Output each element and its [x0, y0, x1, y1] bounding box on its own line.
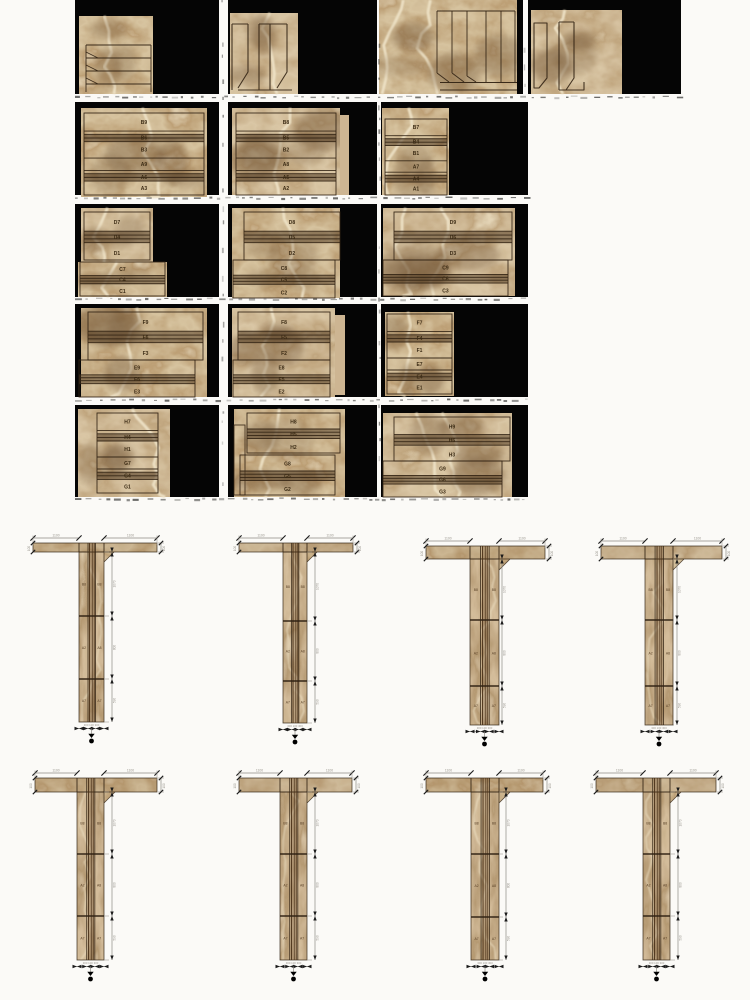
svg-text:F6: F6	[143, 335, 149, 341]
svg-text:A8: A8	[300, 884, 304, 888]
svg-text:C3: C3	[442, 289, 449, 295]
svg-text:A7: A7	[492, 704, 496, 708]
svg-text:1100: 1100	[689, 769, 696, 773]
svg-text:A8: A8	[97, 884, 101, 888]
svg-text:B8: B8	[97, 583, 101, 587]
svg-text:1100: 1100	[257, 534, 264, 538]
svg-text:300 100 300: 300 100 300	[649, 961, 665, 965]
svg-text:100: 100	[721, 783, 725, 789]
svg-text:1070: 1070	[113, 580, 117, 587]
svg-text:B8: B8	[283, 120, 290, 126]
svg-text:A7: A7	[97, 699, 101, 703]
svg-text:A7: A7	[300, 937, 304, 941]
svg-text:1070: 1070	[503, 586, 507, 593]
svg-text:F9: F9	[143, 320, 149, 326]
svg-text:A2: A2	[474, 652, 478, 656]
svg-text:800: 800	[679, 882, 683, 888]
svg-text:1100: 1100	[445, 769, 452, 773]
svg-text:300 100 300: 300 100 300	[286, 961, 302, 965]
svg-text:1070: 1070	[316, 819, 320, 826]
svg-text:F2: F2	[281, 351, 287, 357]
svg-text:G5: G5	[284, 474, 291, 480]
svg-text:A7: A7	[283, 937, 287, 941]
svg-text:E8: E8	[278, 366, 284, 372]
svg-text:300 100 300: 300 100 300	[477, 961, 493, 965]
svg-text:1070: 1070	[679, 819, 683, 826]
svg-text:590: 590	[316, 935, 320, 941]
svg-text:F3: F3	[143, 351, 149, 357]
svg-text:B8: B8	[474, 588, 478, 592]
svg-text:G8: G8	[284, 461, 291, 467]
svg-text:590: 590	[507, 936, 511, 942]
svg-text:100: 100	[162, 546, 166, 552]
svg-text:H9: H9	[449, 424, 456, 430]
svg-text:A1: A1	[413, 187, 420, 193]
svg-text:B8: B8	[475, 822, 479, 826]
svg-text:1100: 1100	[444, 537, 451, 541]
svg-text:100: 100	[233, 546, 237, 552]
svg-text:100: 100	[29, 783, 33, 789]
svg-text:100: 100	[595, 551, 599, 557]
svg-text:A8: A8	[492, 884, 496, 888]
svg-text:E5: E5	[278, 377, 284, 383]
svg-text:A8: A8	[301, 650, 305, 654]
svg-text:A7: A7	[80, 937, 84, 941]
svg-text:G3: G3	[439, 490, 446, 496]
svg-text:A8: A8	[283, 162, 290, 168]
svg-text:A4: A4	[413, 177, 420, 183]
svg-text:F8: F8	[281, 320, 287, 326]
svg-text:300 100 300: 300 100 300	[287, 724, 303, 728]
svg-text:300 100 300: 300 100 300	[651, 726, 667, 730]
svg-text:1100: 1100	[52, 534, 59, 538]
svg-text:A7: A7	[474, 704, 478, 708]
svg-text:E2: E2	[278, 389, 284, 395]
svg-text:B6: B6	[141, 135, 148, 141]
svg-text:A7: A7	[97, 937, 101, 941]
svg-text:D4: D4	[114, 235, 121, 241]
svg-text:C9: C9	[442, 266, 449, 272]
svg-text:1100: 1100	[127, 534, 134, 538]
svg-text:D7: D7	[114, 220, 121, 226]
svg-text:B8: B8	[82, 583, 86, 587]
svg-text:B7: B7	[413, 125, 420, 131]
svg-text:B8: B8	[492, 822, 496, 826]
svg-text:E9: E9	[134, 366, 140, 372]
svg-text:100: 100	[590, 783, 594, 789]
svg-text:1100: 1100	[326, 534, 333, 538]
svg-text:F4: F4	[417, 336, 423, 342]
svg-text:D8: D8	[289, 220, 296, 226]
svg-text:A7: A7	[663, 937, 667, 941]
svg-text:A7: A7	[286, 701, 290, 705]
svg-text:B8: B8	[492, 588, 496, 592]
svg-text:D5: D5	[289, 235, 296, 241]
svg-text:B8: B8	[80, 822, 84, 826]
svg-text:A3: A3	[141, 186, 148, 192]
svg-text:1100: 1100	[619, 537, 626, 541]
svg-text:A8: A8	[666, 652, 670, 656]
svg-text:100: 100	[233, 783, 237, 789]
svg-text:1070: 1070	[507, 819, 511, 826]
svg-text:B8: B8	[300, 822, 304, 826]
svg-text:D1: D1	[114, 251, 121, 257]
svg-text:C6: C6	[442, 277, 449, 283]
svg-text:H4: H4	[124, 435, 131, 441]
svg-text:300 100 300: 300 100 300	[477, 726, 493, 730]
svg-text:H5: H5	[290, 432, 297, 438]
svg-text:H8: H8	[290, 419, 297, 425]
svg-text:H2: H2	[290, 445, 297, 451]
svg-text:100: 100	[420, 783, 424, 789]
svg-text:B8: B8	[649, 588, 653, 592]
svg-text:A8: A8	[97, 646, 101, 650]
svg-text:B8: B8	[663, 822, 667, 826]
svg-text:1070: 1070	[678, 586, 682, 593]
svg-text:B8: B8	[646, 822, 650, 826]
svg-text:H6: H6	[449, 438, 456, 444]
svg-text:D9: D9	[450, 220, 457, 226]
svg-text:100: 100	[162, 783, 166, 789]
svg-text:A8: A8	[663, 884, 667, 888]
svg-text:D6: D6	[450, 235, 457, 241]
svg-text:A2: A2	[646, 884, 650, 888]
svg-text:H7: H7	[124, 420, 131, 426]
svg-text:590: 590	[113, 935, 117, 941]
svg-text:100: 100	[420, 551, 424, 557]
svg-text:590: 590	[679, 935, 683, 941]
svg-text:B8: B8	[283, 822, 287, 826]
svg-text:A2: A2	[82, 646, 86, 650]
svg-text:E1: E1	[416, 385, 422, 391]
svg-text:A8: A8	[492, 652, 496, 656]
svg-text:A2: A2	[475, 884, 479, 888]
svg-text:590: 590	[503, 703, 507, 709]
svg-text:C4: C4	[119, 278, 126, 284]
svg-text:C7: C7	[119, 267, 126, 273]
svg-text:1100: 1100	[326, 769, 333, 773]
svg-text:B2: B2	[283, 148, 290, 154]
svg-text:H1: H1	[124, 447, 131, 453]
svg-text:B8: B8	[286, 585, 290, 589]
svg-text:300 100 300: 300 100 300	[83, 961, 99, 965]
svg-text:G9: G9	[439, 467, 446, 473]
svg-text:A7: A7	[646, 937, 650, 941]
svg-text:800: 800	[316, 648, 320, 654]
svg-text:590: 590	[678, 703, 682, 709]
svg-text:A7: A7	[301, 701, 305, 705]
svg-text:D3: D3	[450, 251, 457, 257]
svg-text:G6: G6	[439, 478, 446, 484]
svg-text:A5: A5	[283, 175, 290, 181]
svg-text:H3: H3	[449, 452, 456, 458]
svg-text:A7: A7	[413, 164, 420, 170]
svg-text:A7: A7	[666, 704, 670, 708]
svg-text:100: 100	[358, 546, 362, 552]
svg-text:B8: B8	[97, 822, 101, 826]
svg-text:590: 590	[316, 699, 320, 705]
svg-text:B8: B8	[666, 588, 670, 592]
svg-text:F5: F5	[281, 335, 287, 341]
svg-text:A6: A6	[141, 175, 148, 181]
svg-text:590: 590	[113, 698, 117, 704]
svg-text:A7: A7	[492, 937, 496, 941]
svg-text:800: 800	[113, 882, 117, 888]
svg-text:800: 800	[678, 650, 682, 656]
svg-text:B9: B9	[141, 120, 148, 126]
svg-text:100: 100	[550, 551, 554, 557]
svg-text:1100: 1100	[616, 769, 623, 773]
svg-text:C8: C8	[281, 266, 288, 272]
svg-text:300 100 300: 300 100 300	[84, 723, 100, 727]
svg-text:E4: E4	[416, 375, 422, 381]
svg-text:B8: B8	[301, 585, 305, 589]
svg-text:B3: B3	[141, 148, 148, 154]
svg-text:E7: E7	[416, 362, 422, 368]
svg-text:B5: B5	[283, 135, 290, 141]
svg-text:100: 100	[548, 783, 552, 789]
svg-text:800: 800	[507, 883, 511, 889]
svg-text:G7: G7	[124, 461, 131, 467]
svg-text:A2: A2	[80, 884, 84, 888]
svg-text:800: 800	[503, 650, 507, 656]
svg-text:A7: A7	[649, 704, 653, 708]
svg-text:E3: E3	[134, 389, 140, 395]
svg-text:1100: 1100	[517, 769, 524, 773]
svg-text:800: 800	[113, 645, 117, 651]
svg-text:B4: B4	[413, 140, 420, 146]
svg-text:A2: A2	[283, 186, 290, 192]
svg-text:A7: A7	[82, 699, 86, 703]
svg-text:100: 100	[27, 546, 31, 552]
svg-text:1070: 1070	[316, 583, 320, 590]
svg-text:C1: C1	[119, 289, 126, 295]
svg-text:1100: 1100	[256, 769, 263, 773]
svg-text:E6: E6	[134, 377, 140, 383]
svg-text:A2: A2	[649, 652, 653, 656]
svg-text:A2: A2	[286, 650, 290, 654]
svg-text:1100: 1100	[52, 769, 59, 773]
svg-text:1100: 1100	[518, 537, 525, 541]
svg-text:D2: D2	[289, 251, 296, 257]
svg-text:C5: C5	[281, 278, 288, 284]
svg-text:A9: A9	[141, 162, 148, 168]
svg-text:C2: C2	[281, 290, 288, 296]
svg-text:A2: A2	[283, 884, 287, 888]
svg-text:800: 800	[316, 882, 320, 888]
svg-text:1100: 1100	[127, 769, 134, 773]
svg-text:G4: G4	[124, 474, 131, 480]
svg-text:B1: B1	[413, 151, 420, 157]
svg-text:100: 100	[727, 551, 731, 557]
svg-text:G1: G1	[124, 484, 131, 490]
svg-text:100: 100	[357, 783, 361, 789]
svg-text:1070: 1070	[113, 819, 117, 826]
svg-text:F7: F7	[417, 321, 423, 327]
svg-text:A7: A7	[475, 937, 479, 941]
svg-text:1100: 1100	[694, 537, 701, 541]
svg-text:F1: F1	[417, 348, 423, 354]
svg-text:G2: G2	[284, 487, 291, 493]
